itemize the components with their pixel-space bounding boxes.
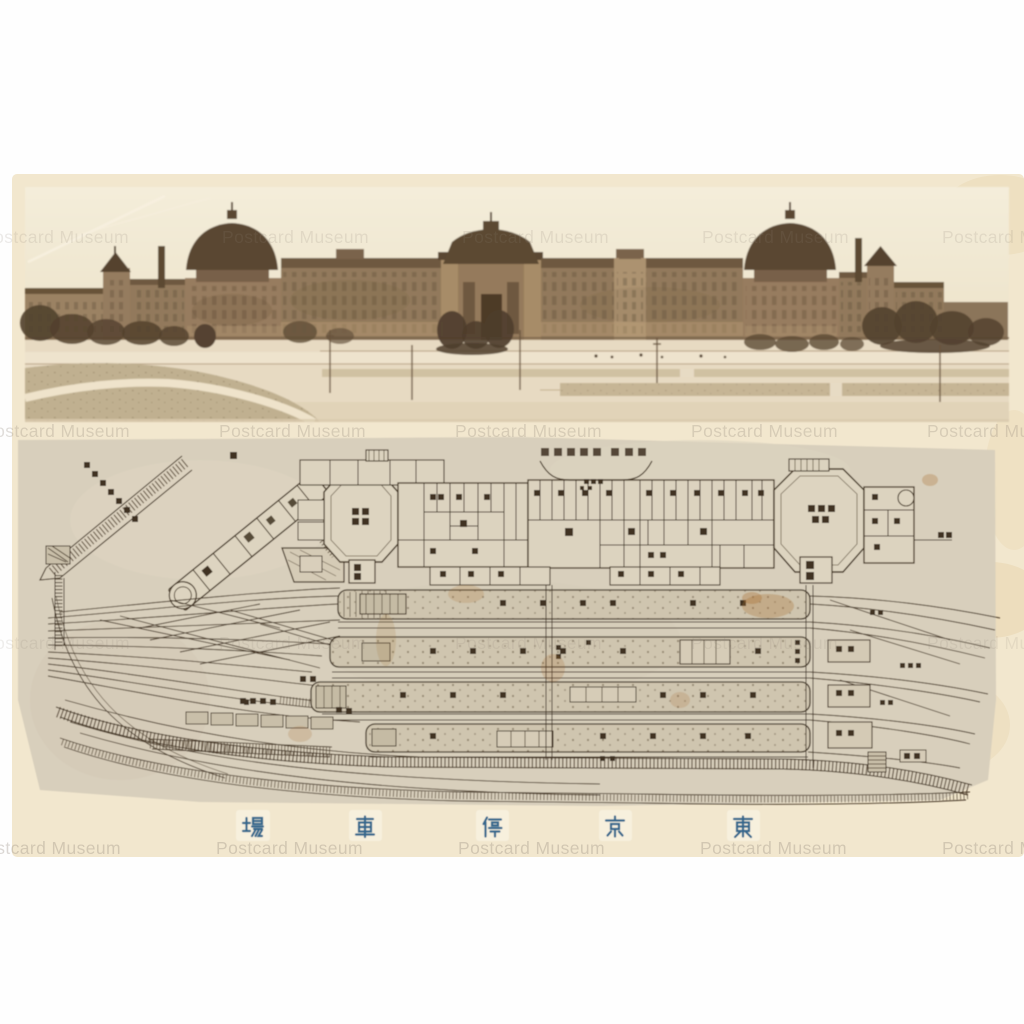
svg-text:Postcard Museum: Postcard Museum	[219, 633, 366, 653]
svg-text:Postcard Museum: Postcard Museum	[927, 421, 1024, 441]
svg-text:Postcard Museum: Postcard Museum	[691, 421, 838, 441]
svg-text:Postcard Museum: Postcard Museum	[691, 633, 838, 653]
svg-text:Postcard Museum: Postcard Museum	[942, 838, 1024, 858]
svg-text:Postcard Museum: Postcard Museum	[216, 838, 363, 858]
svg-text:Postcard Museum: Postcard Museum	[0, 633, 130, 653]
svg-text:Postcard Museum: Postcard Museum	[458, 838, 605, 858]
svg-text:Postcard Museum: Postcard Museum	[927, 633, 1024, 653]
svg-text:Postcard Museum: Postcard Museum	[455, 633, 602, 653]
svg-text:Postcard Museum: Postcard Museum	[222, 227, 369, 247]
svg-text:Postcard Museum: Postcard Museum	[219, 421, 366, 441]
svg-text:Postcard Museum: Postcard Museum	[0, 838, 121, 858]
svg-text:Postcard Museum: Postcard Museum	[0, 227, 129, 247]
svg-text:Postcard Museum: Postcard Museum	[462, 227, 609, 247]
svg-text:Postcard Museum: Postcard Museum	[700, 838, 847, 858]
svg-text:Postcard Museum: Postcard Museum	[0, 421, 130, 441]
svg-text:Postcard Museum: Postcard Museum	[455, 421, 602, 441]
svg-text:Postcard Museum: Postcard Museum	[942, 227, 1024, 247]
svg-text:Postcard Museum: Postcard Museum	[702, 227, 849, 247]
